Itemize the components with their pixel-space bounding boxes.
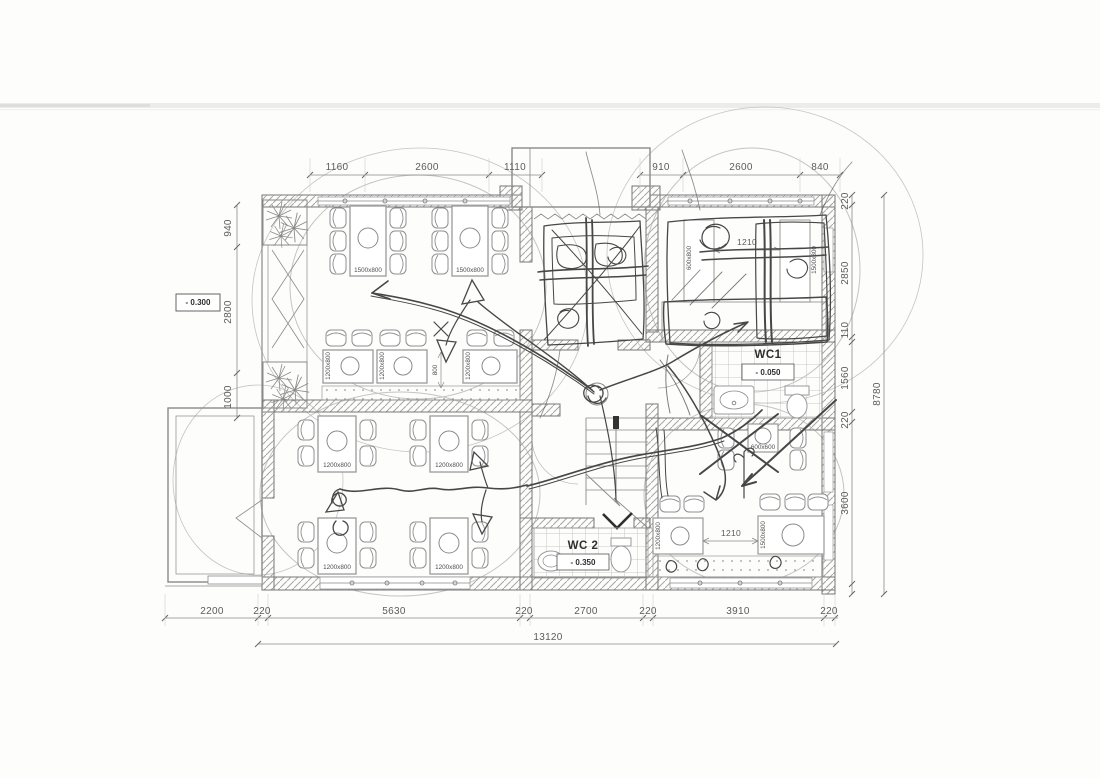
dimensions-right: 220 2850 110 1560 220 3600 8780 bbox=[840, 192, 887, 597]
wc1-label: WC1 bbox=[754, 349, 781, 361]
table-label: 1500x800 bbox=[811, 246, 818, 274]
dim-right-5: 220 bbox=[840, 411, 851, 429]
banquette-bench bbox=[322, 386, 520, 400]
table-label: 1200x800 bbox=[655, 522, 662, 550]
table-label: 1500x800 bbox=[760, 521, 767, 549]
dimensions-bottom: 2200 220 5630 220 2700 220 3910 220 1312… bbox=[162, 594, 839, 647]
table-label: 1200x800 bbox=[435, 462, 463, 469]
table-label: 1200x800 bbox=[323, 564, 351, 571]
dim-top-6: 840 bbox=[811, 162, 829, 173]
dim-bottom-1: 2200 bbox=[200, 606, 224, 617]
room-wc2: WC 2 - 0.350 bbox=[534, 528, 648, 578]
dim-top-2: 2600 bbox=[415, 162, 439, 173]
room-wc1: WC1 - 0.050 bbox=[712, 342, 822, 418]
entry-level: - 0.300 bbox=[186, 298, 211, 307]
table-label: 1200x800 bbox=[325, 352, 332, 380]
dim-left-1: 940 bbox=[223, 219, 234, 237]
table-label: 1200x800 bbox=[323, 462, 351, 469]
staircase bbox=[586, 416, 648, 528]
bay-room bbox=[512, 148, 650, 219]
table-label: 1200x800 bbox=[379, 352, 386, 380]
dim-left-3: 1000 bbox=[223, 385, 234, 409]
floor-plan-drawing: WC1 - 0.050 WC 2 - 0.350 1500x800 1500x8… bbox=[0, 0, 1100, 778]
dim-bottom-4: 220 bbox=[515, 606, 533, 617]
dining-lower-left: 1200x800 1200x800 1200x800 1200x800 bbox=[298, 416, 488, 574]
dining-upper-left: 1500x800 1500x800 bbox=[330, 206, 508, 276]
bench-strip bbox=[653, 556, 823, 577]
dim-right-3: 110 bbox=[840, 321, 851, 338]
dim-bottom-2: 220 bbox=[253, 606, 271, 617]
wc1-level: - 0.050 bbox=[756, 368, 781, 377]
dim-bottom-6: 220 bbox=[639, 606, 657, 617]
wc1-toilet-bowl bbox=[787, 394, 807, 418]
wc2-toilet-bowl bbox=[611, 546, 631, 572]
table-label: 1500x800 bbox=[456, 267, 484, 274]
wc2-label: WC 2 bbox=[568, 540, 599, 552]
dim-bottom-3: 5630 bbox=[382, 606, 406, 617]
dim-right-total: 8780 bbox=[872, 382, 883, 406]
table-label: 1500x800 bbox=[354, 267, 382, 274]
dim-left-2: 2800 bbox=[223, 300, 234, 324]
dim-right-2: 2850 bbox=[840, 261, 851, 285]
dim-bottom-5: 2700 bbox=[574, 606, 598, 617]
table-label: 1200x800 bbox=[435, 564, 463, 571]
dimensions-top: 1160 2600 1110 910 2600 840 bbox=[307, 158, 843, 192]
dim-right-6: 3600 bbox=[840, 491, 851, 515]
dim-bottom-7: 3910 bbox=[726, 606, 750, 617]
gap-dim: 1210 bbox=[737, 237, 757, 247]
table-label: 600x600 bbox=[751, 444, 776, 451]
dining-mid-left: 1200x800 1200x800 1200x800 800 bbox=[322, 330, 520, 400]
dim-top-5: 2600 bbox=[729, 162, 753, 173]
gap-dim: 1210 bbox=[721, 528, 741, 538]
dimensions-left: 940 2800 1000 - 0.300 bbox=[176, 202, 240, 421]
dim-top-1: 1160 bbox=[326, 162, 349, 173]
entry-porch bbox=[165, 408, 262, 586]
room-lower-right: 600x600 1200x800 1500x800 1210 bbox=[653, 424, 828, 577]
gap-dim: 800 bbox=[432, 364, 439, 375]
planter-plants bbox=[266, 202, 309, 411]
dim-top-3: 1110 bbox=[504, 162, 526, 173]
dim-bottom-total: 13120 bbox=[533, 632, 562, 643]
dim-top-4: 910 bbox=[652, 162, 670, 173]
dim-right-1: 220 bbox=[840, 192, 851, 210]
scan-artifact-line bbox=[0, 103, 1100, 110]
wc2-level: - 0.350 bbox=[571, 558, 596, 567]
wc2-toilet-tank bbox=[611, 538, 631, 546]
dim-bottom-8: 220 bbox=[820, 606, 838, 617]
table-label: 600x800 bbox=[686, 245, 693, 270]
table-label: 1200x800 bbox=[465, 352, 472, 380]
scanned-floor-plan-page: WC1 - 0.050 WC 2 - 0.350 1500x800 1500x8… bbox=[0, 0, 1100, 778]
dim-right-4: 1560 bbox=[840, 366, 851, 390]
